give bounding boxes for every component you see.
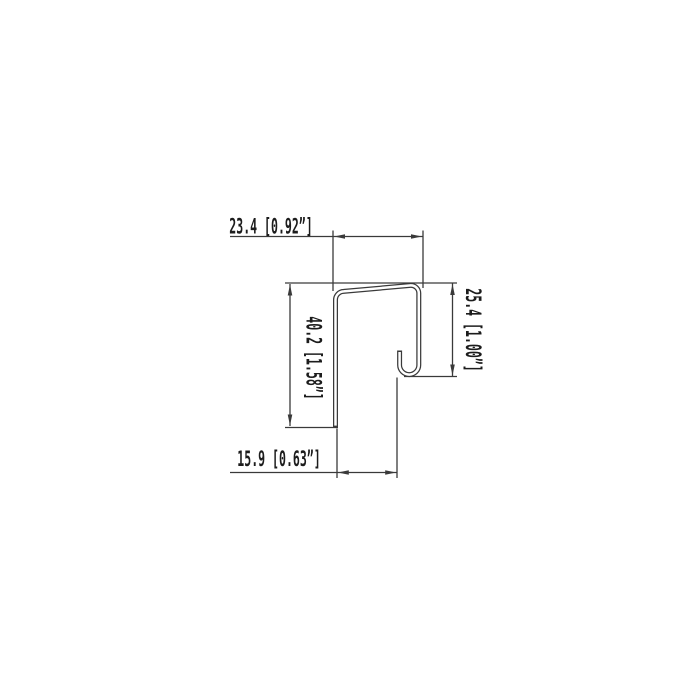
profile-sheet-outer bbox=[335, 285, 418, 427]
arrowhead-left-bottom bbox=[288, 415, 293, 426]
drawing-canvas: 23.4 [0.92”] 25.4 [1.00”] 40.2 [1.58”] 1… bbox=[0, 0, 700, 700]
profile-outline bbox=[335, 285, 418, 427]
arrowhead-top-right bbox=[411, 234, 422, 239]
dimension-labels: 23.4 [0.92”] 25.4 [1.00”] 40.2 [1.58”] 1… bbox=[229, 214, 486, 471]
dimension-lines bbox=[230, 231, 457, 479]
arrowhead-right-top bbox=[450, 284, 455, 295]
dim-label-bottom-width: 15.9 [0.63”] bbox=[237, 446, 320, 471]
arrowhead-left-top bbox=[288, 285, 293, 296]
dim-label-top-width: 23.4 [0.92”] bbox=[229, 214, 312, 239]
arrowhead-top-left bbox=[334, 234, 345, 239]
technical-profile-drawing: 23.4 [0.92”] 25.4 [1.00”] 40.2 [1.58”] 1… bbox=[0, 0, 700, 700]
dim-label-right-height: 25.4 [1.00”] bbox=[461, 288, 486, 371]
arrowhead-bottom-right bbox=[385, 470, 396, 475]
arrowhead-bottom-left bbox=[338, 470, 349, 475]
profile-sheet-inner bbox=[335, 285, 418, 425]
dim-label-left-height: 40.2 [1.58”] bbox=[302, 316, 327, 399]
arrowhead-right-bottom bbox=[450, 365, 455, 376]
